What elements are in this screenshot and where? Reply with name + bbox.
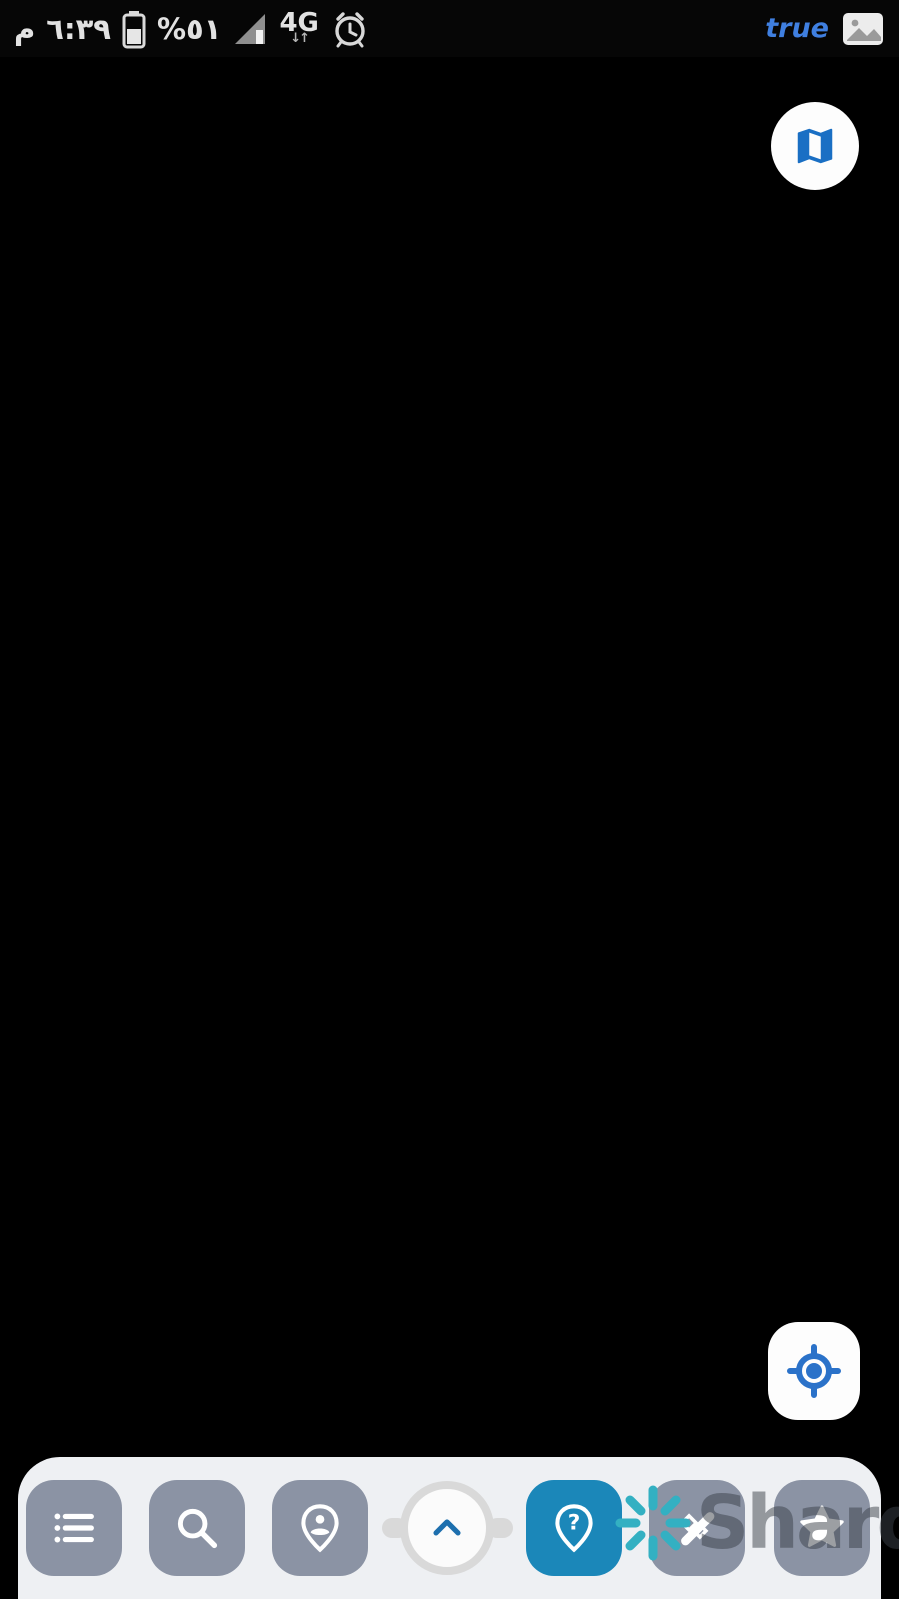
favorites-button[interactable] bbox=[774, 1480, 870, 1576]
data-arrows-icon: ↓↑ bbox=[290, 34, 308, 44]
map-icon bbox=[792, 123, 838, 169]
help-pin-icon: ? bbox=[548, 1502, 600, 1554]
app-screen: م ٦:٣٩ %٥١ 4G ↓↑ bbox=[0, 0, 899, 1599]
gps-locate-button[interactable] bbox=[768, 1322, 860, 1420]
status-bar: م ٦:٣٩ %٥١ 4G ↓↑ bbox=[0, 0, 899, 57]
star-icon bbox=[795, 1501, 849, 1555]
gps-target-icon bbox=[786, 1343, 842, 1399]
map-canvas[interactable] bbox=[0, 0, 899, 1599]
parcel-query-button[interactable]: ? bbox=[526, 1480, 622, 1576]
signal-icon bbox=[232, 11, 268, 47]
svg-text:?: ? bbox=[568, 1510, 581, 1535]
status-left: م ٦:٣٩ %٥١ 4G ↓↑ bbox=[14, 9, 370, 49]
layers-list-button[interactable] bbox=[26, 1480, 122, 1576]
map-type-button[interactable] bbox=[771, 102, 859, 190]
chevron-up-icon bbox=[425, 1506, 469, 1550]
search-icon bbox=[171, 1502, 223, 1554]
alarm-clock-icon bbox=[330, 9, 370, 49]
measure-button[interactable] bbox=[649, 1480, 745, 1576]
expand-panel-button[interactable] bbox=[400, 1481, 494, 1575]
network-type: 4G ↓↑ bbox=[279, 13, 318, 44]
battery-percent: %٥١ bbox=[157, 12, 221, 46]
person-pin-icon bbox=[294, 1502, 346, 1554]
battery-icon bbox=[122, 9, 146, 49]
search-button[interactable] bbox=[149, 1480, 245, 1576]
person-location-button[interactable] bbox=[272, 1480, 368, 1576]
list-icon bbox=[48, 1502, 100, 1554]
measure-icon bbox=[671, 1502, 723, 1554]
gallery-icon bbox=[841, 10, 885, 48]
meridiem-label: م bbox=[14, 12, 35, 46]
clock-time: ٦:٣٩ bbox=[46, 12, 111, 46]
carrier-notification: true bbox=[765, 13, 829, 44]
